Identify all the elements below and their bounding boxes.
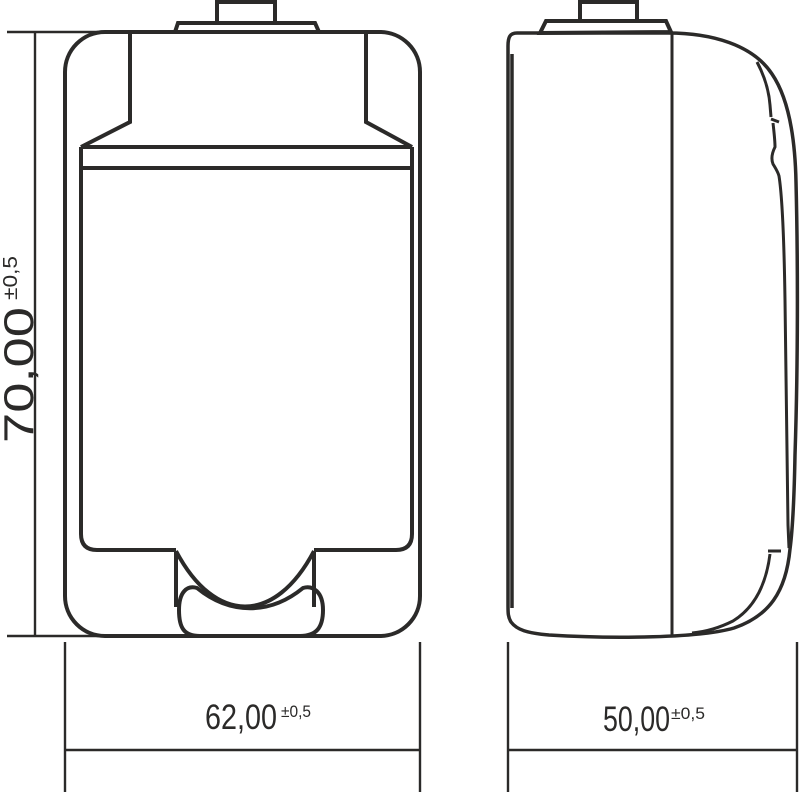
front-top-tab [217, 2, 275, 23]
front-lid-left-side [81, 147, 176, 550]
front-top-collar [175, 23, 319, 32]
depth-tolerance: ±0,5 [671, 704, 705, 723]
technical-drawing: 70,00 ±0,5 62,00 ±0,5 50,00 ±0,5 [0, 0, 800, 800]
side-lid-inner-line [772, 123, 789, 548]
front-lid-right-side [314, 147, 412, 550]
front-notch-curve [176, 551, 314, 607]
height-value: 70,00 [0, 307, 42, 443]
side-top-collar [540, 21, 671, 33]
side-top-tab [580, 2, 637, 21]
side-hinge-step [771, 119, 779, 122]
dimension-width: 62,00 ±0,5 [65, 642, 420, 792]
side-view [508, 2, 797, 637]
side-lid-inner-lower [692, 554, 770, 633]
front-lid-attachment-right [366, 33, 412, 147]
side-body-outline [508, 33, 797, 637]
front-lid-attachment-left [81, 33, 130, 147]
front-thumb-grip [179, 587, 323, 636]
dimension-height: 70,00 ±0,5 [0, 32, 108, 636]
depth-value: 50,00 [603, 700, 670, 739]
width-value: 62,00 [205, 698, 277, 737]
drawing-canvas: 70,00 ±0,5 62,00 ±0,5 50,00 ±0,5 [0, 0, 800, 800]
front-view [65, 2, 420, 636]
dimension-depth: 50,00 ±0,5 [508, 642, 797, 792]
width-tolerance: ±0,5 [281, 702, 311, 721]
height-tolerance: ±0,5 [0, 256, 22, 300]
